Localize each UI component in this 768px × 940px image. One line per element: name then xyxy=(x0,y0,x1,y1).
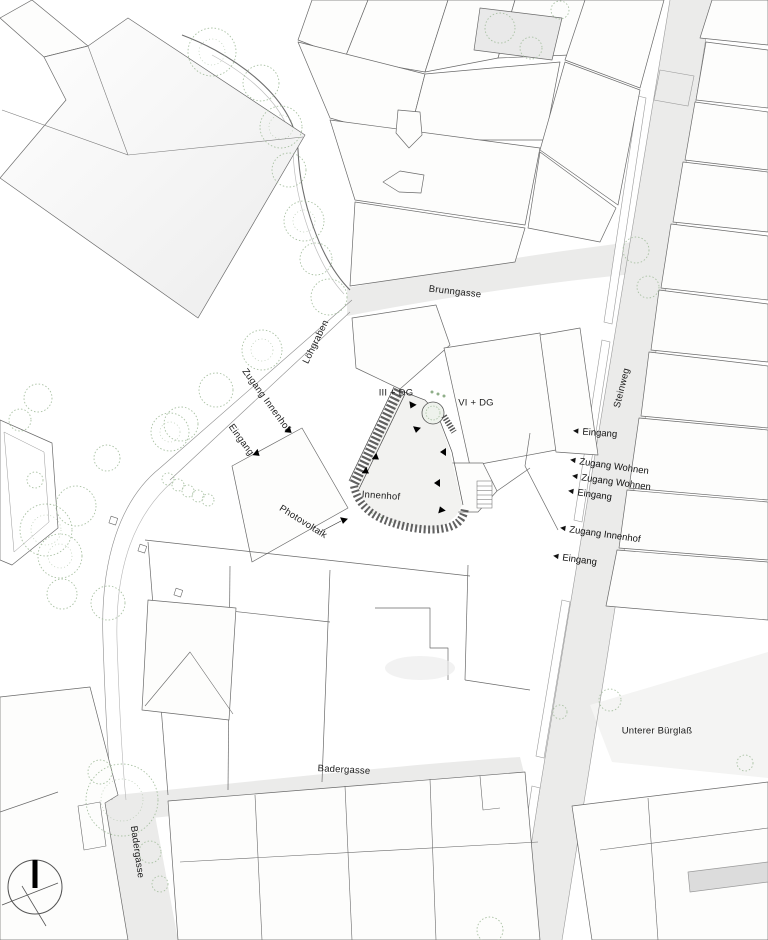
site-plan: Brunngasse Löhgraben Zugang Innenhof Ein… xyxy=(0,0,768,940)
building-iii-dg xyxy=(352,305,450,389)
entrance-label: Eingang xyxy=(582,427,618,440)
label-floors-vi-dg: VI + DG xyxy=(458,398,493,409)
label-floors-iii-dg: III + DG xyxy=(379,388,414,399)
arrow-left-icon: ◀ xyxy=(568,488,574,496)
project-stair xyxy=(444,416,454,432)
arrow-left-icon: ◀ xyxy=(570,457,576,465)
building-top-left xyxy=(0,18,305,318)
project-round-tree xyxy=(422,402,444,424)
street-label-unterer-buerglass: Unterer Bürglaß xyxy=(622,726,693,737)
building-gable-house xyxy=(142,600,236,720)
arrow-left-icon: ◀ xyxy=(553,553,559,561)
arrow-left-icon: ◀ xyxy=(560,525,566,533)
plaza-unterer-buerglass xyxy=(590,652,768,778)
arrow-left-icon: ◀ xyxy=(573,428,579,435)
site-plan-drawing xyxy=(0,0,768,940)
arrow-left-icon: ◀ xyxy=(572,473,578,481)
project-grid-element xyxy=(477,481,492,508)
